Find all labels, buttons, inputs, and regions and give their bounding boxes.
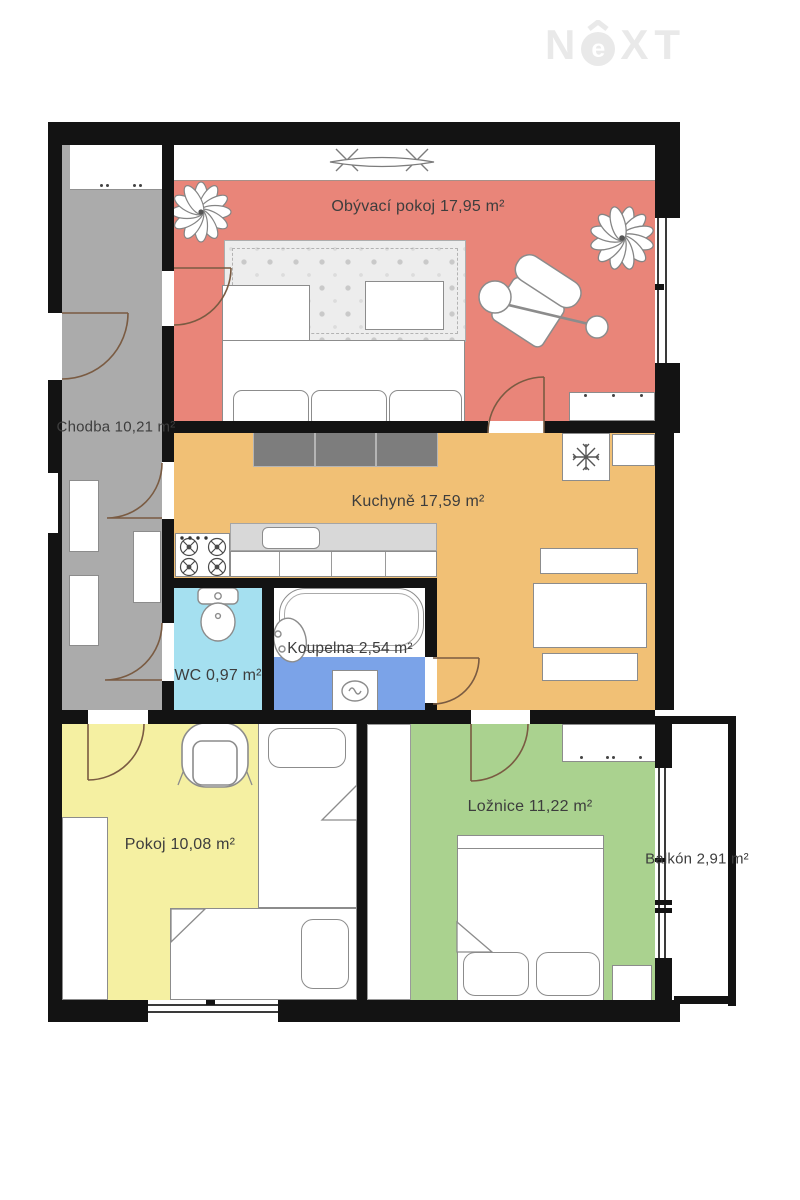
room-label-bathroom: Koupelna 2,54 m²: [287, 640, 413, 658]
room-label-hallway: Chodba 10,21 m²: [57, 419, 176, 436]
room-label-balcony: Balkón 2,91 m²: [645, 851, 749, 868]
door-arcs: [0, 0, 800, 1200]
living-room-door-swing: [174, 268, 231, 325]
pokoj-door-swing: [88, 724, 144, 780]
floor-plan: N e X T: [0, 0, 800, 1200]
room-label-pokoj: Pokoj 10,08 m²: [125, 836, 235, 854]
bedroom-door-swing: [471, 724, 528, 781]
room-label-wc: WC 0,97 m²: [174, 667, 261, 685]
room-label-living-room: Obývací pokoj 17,95 m²: [331, 198, 504, 216]
kitchen-living-door-swing: [488, 377, 544, 433]
kitchen-door-swing: [107, 463, 162, 518]
entrance-door-swing: [62, 313, 128, 379]
room-label-bedroom: Ložnice 11,22 m²: [468, 798, 593, 816]
bathroom-door-swing: [433, 658, 479, 704]
room-label-kitchen: Kuchyně 17,59 m²: [351, 493, 484, 511]
wc-door-swing: [105, 623, 162, 680]
